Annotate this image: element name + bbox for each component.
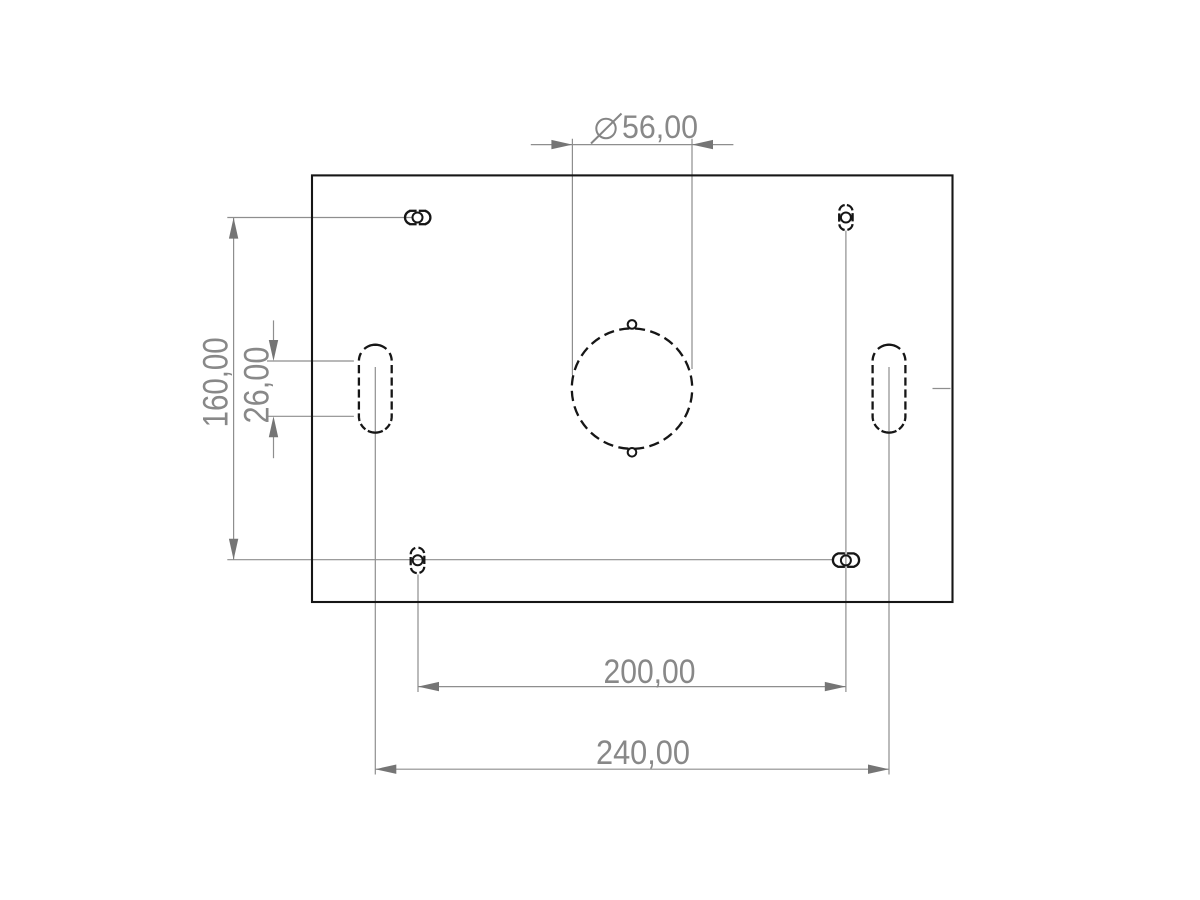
svg-text:26,00: 26,00	[238, 347, 277, 424]
svg-text:56,00: 56,00	[622, 109, 698, 145]
svg-text:200,00: 200,00	[604, 653, 696, 691]
svg-text:160,00: 160,00	[197, 337, 236, 427]
svg-text:240,00: 240,00	[596, 734, 690, 772]
